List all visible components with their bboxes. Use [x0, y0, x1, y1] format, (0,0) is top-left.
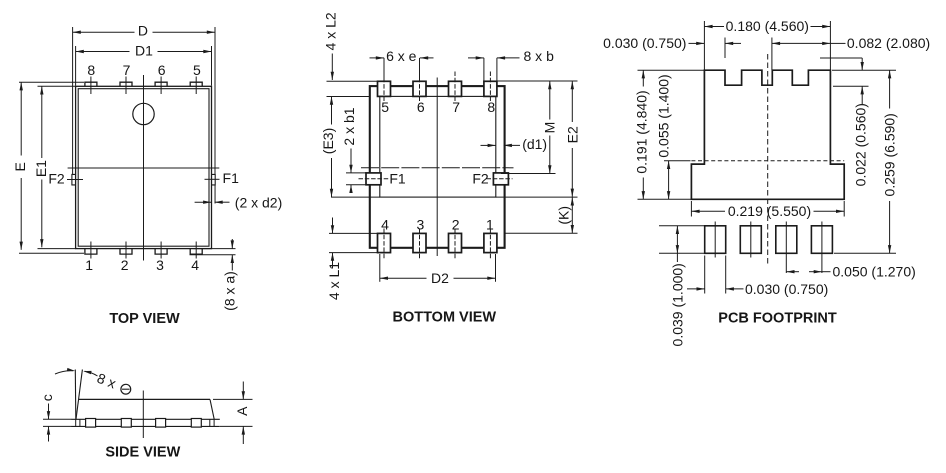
svg-text:0.030 (0.750): 0.030 (0.750) [603, 35, 686, 51]
svg-text:BOTTOM VIEW: BOTTOM VIEW [392, 310, 496, 326]
svg-text:E2: E2 [564, 126, 580, 143]
svg-text:0.022 (0.560): 0.022 (0.560) [853, 103, 869, 186]
svg-text:E1: E1 [33, 160, 49, 177]
svg-text:D2: D2 [431, 270, 449, 286]
svg-text:2 x b1: 2 x b1 [341, 107, 357, 145]
svg-text:0.030 (0.750): 0.030 (0.750) [745, 281, 828, 297]
svg-text:F1: F1 [223, 170, 240, 186]
svg-text:0.055 (1.400): 0.055 (1.400) [655, 74, 671, 157]
svg-text:TOP VIEW: TOP VIEW [109, 311, 180, 327]
svg-text:5: 5 [381, 99, 389, 115]
svg-text:SIDE VIEW: SIDE VIEW [105, 445, 180, 461]
svg-text:3: 3 [156, 257, 164, 273]
svg-text:M: M [542, 122, 558, 134]
svg-text:8: 8 [487, 99, 495, 115]
svg-text:0.082 (2.080): 0.082 (2.080) [847, 35, 930, 51]
svg-text:7: 7 [452, 99, 460, 115]
svg-text:3: 3 [417, 217, 425, 233]
svg-text:D1: D1 [135, 43, 153, 59]
svg-text:(K): (K) [556, 206, 572, 225]
svg-text:0.219 (5.550): 0.219 (5.550) [728, 203, 811, 219]
svg-text:4 x L2: 4 x L2 [323, 12, 339, 50]
svg-text:1: 1 [486, 217, 494, 233]
svg-text:D: D [138, 23, 148, 39]
svg-text:4 x L1: 4 x L1 [326, 262, 342, 300]
svg-text:8 x b: 8 x b [524, 48, 555, 64]
svg-text:4: 4 [191, 257, 199, 273]
svg-text:6 x e: 6 x e [386, 48, 417, 64]
svg-text:0.180 (4.560): 0.180 (4.560) [726, 18, 809, 34]
svg-text:E: E [12, 162, 28, 171]
svg-text:F2: F2 [48, 171, 65, 187]
svg-text:2: 2 [452, 217, 460, 233]
svg-text:F2: F2 [472, 171, 489, 187]
svg-text:0.259 (6.590): 0.259 (6.590) [881, 113, 897, 196]
svg-text:1: 1 [85, 257, 93, 273]
svg-text:PCB FOOTPRINT: PCB FOOTPRINT [718, 310, 837, 326]
svg-text:7: 7 [123, 62, 131, 78]
svg-text:0.050 (1.270): 0.050 (1.270) [833, 263, 916, 279]
svg-text:2: 2 [121, 257, 129, 273]
svg-text:(2 x d2): (2 x d2) [235, 194, 282, 210]
svg-text:A: A [234, 406, 250, 416]
svg-text:F1: F1 [389, 171, 406, 187]
svg-text:8 x: 8 x [95, 370, 118, 392]
svg-text:4: 4 [381, 217, 389, 233]
svg-text:6: 6 [158, 62, 166, 78]
svg-text:c: c [39, 394, 55, 401]
svg-text:(8 x a): (8 x a) [221, 271, 237, 311]
svg-text:8: 8 [87, 62, 95, 78]
svg-text:(E3): (E3) [320, 128, 336, 154]
svg-text:6: 6 [417, 99, 425, 115]
svg-text:5: 5 [193, 62, 201, 78]
svg-text:(d1): (d1) [522, 136, 547, 152]
svg-text:0.039 (1.000): 0.039 (1.000) [669, 263, 685, 346]
svg-text:0.191 (4.840): 0.191 (4.840) [633, 90, 649, 173]
